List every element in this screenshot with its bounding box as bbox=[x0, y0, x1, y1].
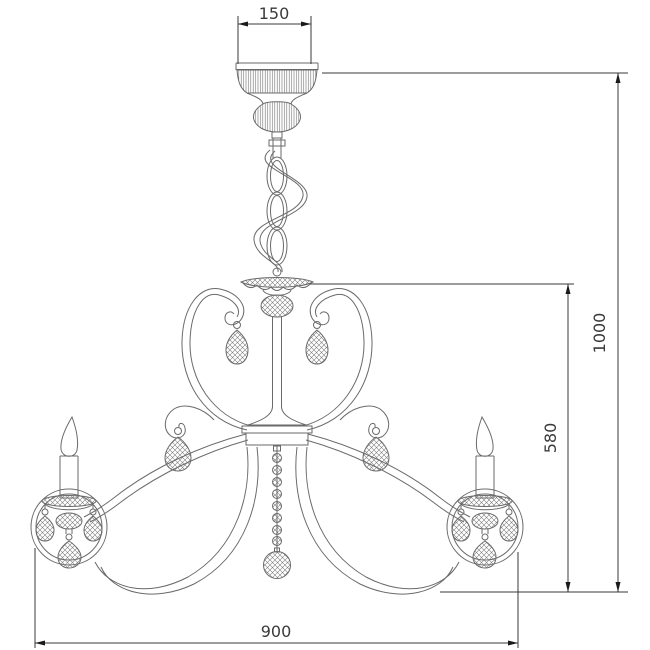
center-column bbox=[242, 317, 312, 445]
chandelier-technical-drawing: 150 1000 580 900 bbox=[0, 0, 650, 650]
crystal-ball bbox=[264, 552, 291, 579]
dimension-body-height: 580 bbox=[310, 284, 574, 592]
candle bbox=[36, 417, 102, 568]
dim-label-body-height: 580 bbox=[541, 423, 560, 454]
right-arm-assembly bbox=[296, 289, 523, 595]
central-hub bbox=[241, 278, 313, 318]
dimension-canopy-width: 150 bbox=[238, 4, 311, 64]
dim-label-overall-height: 1000 bbox=[590, 313, 609, 354]
pendant-bead-chain bbox=[264, 445, 291, 579]
left-arm-assembly bbox=[31, 289, 258, 595]
hanging-chain bbox=[254, 138, 307, 276]
dimension-overall-height: 1000 bbox=[322, 73, 628, 592]
dim-label-body-width: 900 bbox=[261, 622, 292, 641]
chandelier-technical-drawing-page: 150 1000 580 900 bbox=[0, 0, 650, 650]
ceiling-canopy bbox=[236, 63, 318, 138]
dim-label-canopy-width: 150 bbox=[259, 4, 290, 23]
